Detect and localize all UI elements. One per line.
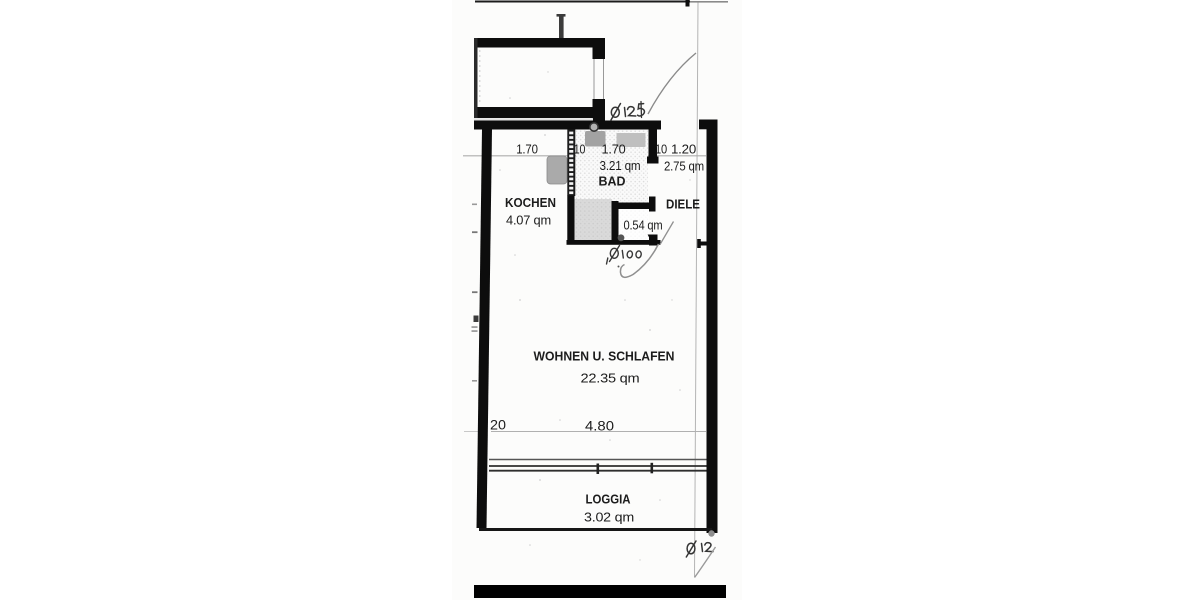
svg-text:20: 20 xyxy=(490,418,506,433)
svg-text:2.75 qm: 2.75 qm xyxy=(664,160,704,174)
svg-text:3.02 qm: 3.02 qm xyxy=(584,511,634,525)
svg-text:BAD: BAD xyxy=(599,174,626,189)
svg-text:10: 10 xyxy=(655,143,667,157)
svg-text:4.80: 4.80 xyxy=(585,419,614,434)
svg-text:KOCHEN: KOCHEN xyxy=(505,195,556,210)
svg-text:22.35 qm: 22.35 qm xyxy=(581,372,640,386)
svg-text:1.20: 1.20 xyxy=(671,143,696,157)
svg-text:0.54 qm: 0.54 qm xyxy=(624,219,663,233)
svg-text:WOHNEN U. SCHLAFEN: WOHNEN U. SCHLAFEN xyxy=(534,349,675,364)
svg-text:1.70: 1.70 xyxy=(516,143,538,157)
svg-text:3.21 qm: 3.21 qm xyxy=(600,159,641,173)
svg-text:10: 10 xyxy=(574,143,586,157)
svg-text:1.70: 1.70 xyxy=(602,143,626,157)
svg-text:DIELE: DIELE xyxy=(666,197,700,212)
svg-text:4.07 qm: 4.07 qm xyxy=(506,214,551,228)
svg-text:LOGGIA: LOGGIA xyxy=(586,492,632,507)
